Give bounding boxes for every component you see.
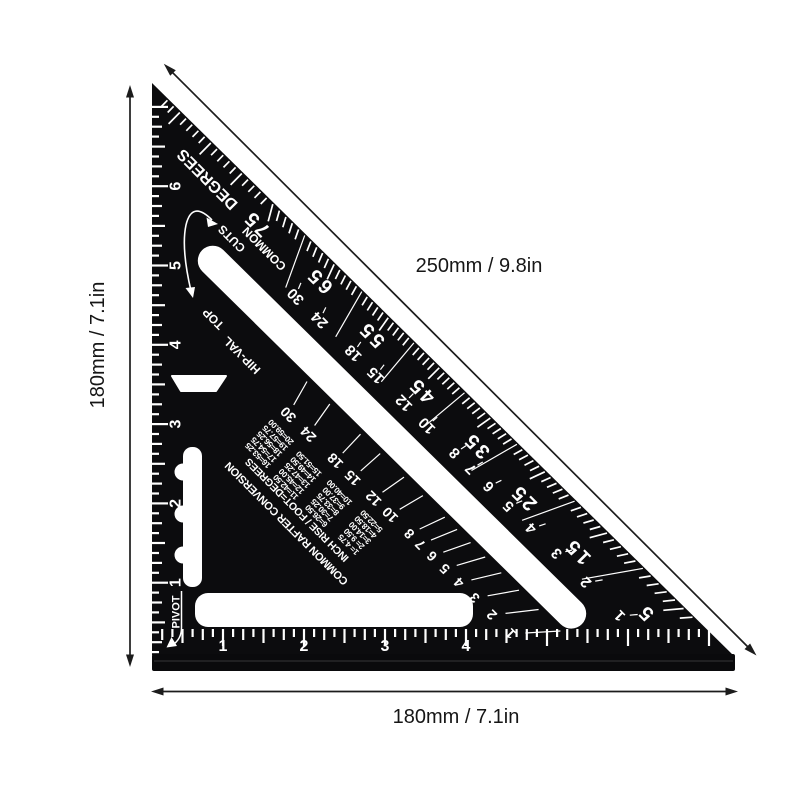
svg-text:180mm / 7.1in: 180mm / 7.1in — [87, 282, 109, 409]
svg-text:3: 3 — [167, 420, 184, 429]
svg-text:180mm / 7.1in: 180mm / 7.1in — [393, 706, 520, 728]
svg-text:2: 2 — [167, 499, 184, 508]
svg-text:1: 1 — [219, 638, 228, 655]
svg-text:PIVOT: PIVOT — [170, 595, 182, 628]
svg-text:2: 2 — [300, 638, 309, 655]
svg-text:4: 4 — [462, 638, 471, 655]
svg-text:5: 5 — [167, 261, 184, 270]
svg-text:1: 1 — [167, 578, 184, 587]
svg-text:3: 3 — [381, 638, 390, 655]
svg-text:6: 6 — [167, 182, 184, 191]
svg-text:250mm / 9.8in: 250mm / 9.8in — [416, 255, 543, 277]
svg-text:4: 4 — [167, 340, 184, 349]
